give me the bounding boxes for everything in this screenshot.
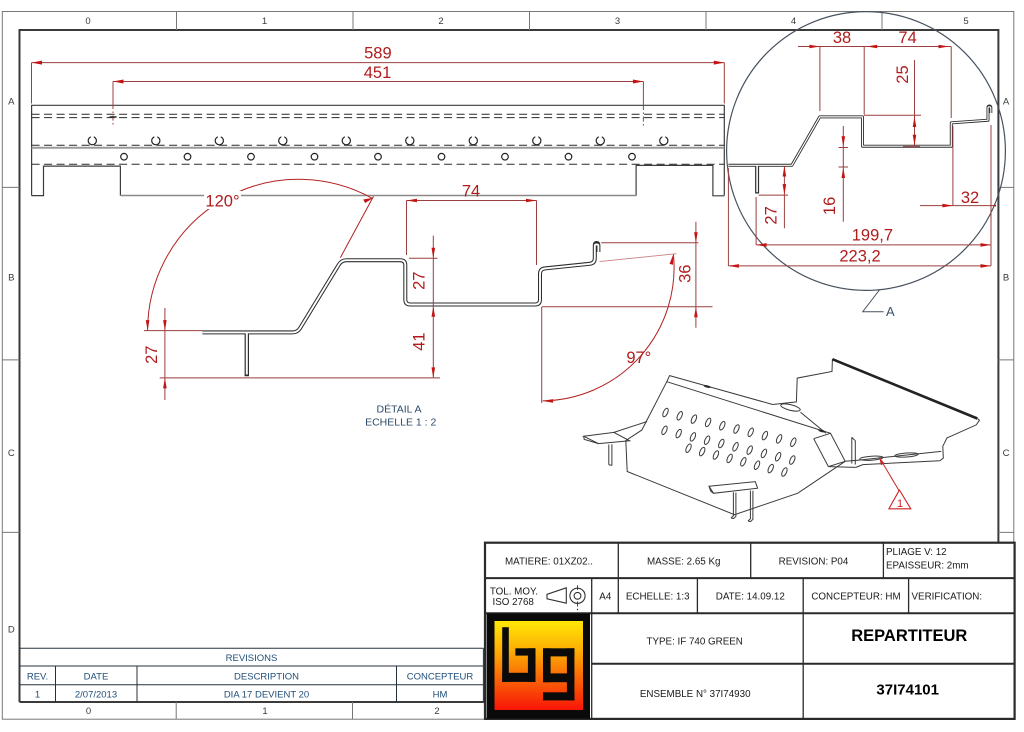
svg-text:VERIFICATION:: VERIFICATION: bbox=[912, 591, 983, 602]
svg-text:1: 1 bbox=[897, 498, 903, 510]
svg-text:27: 27 bbox=[411, 272, 429, 290]
svg-text:37I74101: 37I74101 bbox=[876, 681, 939, 698]
svg-text:C: C bbox=[8, 448, 15, 459]
svg-text:97°: 97° bbox=[626, 349, 651, 367]
svg-text:B: B bbox=[8, 273, 14, 284]
svg-text:DATE: DATE bbox=[84, 672, 109, 683]
svg-text:DATE: 14.09.12: DATE: 14.09.12 bbox=[716, 591, 785, 602]
svg-text:D: D bbox=[8, 625, 15, 636]
svg-text:PLIAGE V: 12: PLIAGE V: 12 bbox=[886, 547, 947, 558]
svg-text:TYPE: IF 740 GREEN: TYPE: IF 740 GREEN bbox=[647, 636, 743, 647]
svg-text:4: 4 bbox=[791, 16, 796, 27]
svg-text:2: 2 bbox=[438, 16, 443, 27]
svg-text:2/07/2013: 2/07/2013 bbox=[75, 690, 117, 701]
svg-text:16: 16 bbox=[821, 197, 839, 215]
svg-text:A4: A4 bbox=[599, 591, 612, 602]
svg-text:REPARTITEUR: REPARTITEUR bbox=[851, 627, 967, 645]
svg-text:3: 3 bbox=[615, 16, 620, 27]
svg-text:0: 0 bbox=[86, 706, 91, 717]
svg-text:DESCRIPTION: DESCRIPTION bbox=[234, 672, 299, 683]
svg-text:120°: 120° bbox=[205, 193, 239, 211]
svg-text:REV.: REV. bbox=[27, 672, 48, 683]
svg-text:REVISIONS: REVISIONS bbox=[226, 653, 278, 664]
svg-text:25: 25 bbox=[894, 65, 912, 83]
svg-text:ECHELLE 1 : 2: ECHELLE 1 : 2 bbox=[365, 417, 436, 429]
svg-text:41: 41 bbox=[411, 332, 429, 350]
svg-text:A: A bbox=[8, 97, 15, 108]
svg-text:27: 27 bbox=[762, 206, 780, 224]
svg-text:27: 27 bbox=[143, 346, 161, 364]
svg-text:DIA 17 DEVIENT 20: DIA 17 DEVIENT 20 bbox=[224, 690, 309, 701]
svg-text:DÉTAIL A: DÉTAIL A bbox=[377, 403, 422, 416]
svg-text:2: 2 bbox=[434, 706, 439, 717]
svg-text:74: 74 bbox=[898, 29, 916, 47]
svg-text:MASSE: 2.65 Kg: MASSE: 2.65 Kg bbox=[647, 556, 721, 567]
svg-text:36: 36 bbox=[677, 265, 695, 283]
svg-text:A: A bbox=[886, 304, 895, 319]
svg-text:C: C bbox=[1003, 448, 1010, 459]
svg-text:REVISION: P04: REVISION: P04 bbox=[779, 556, 849, 567]
svg-text:199,7: 199,7 bbox=[852, 227, 893, 245]
svg-text:1: 1 bbox=[262, 16, 267, 27]
svg-text:CONCEPTEUR: HM: CONCEPTEUR: HM bbox=[811, 591, 900, 602]
svg-text:38: 38 bbox=[833, 29, 851, 47]
svg-text:451: 451 bbox=[364, 64, 392, 82]
svg-text:1: 1 bbox=[262, 706, 267, 717]
svg-text:A: A bbox=[1003, 97, 1010, 108]
svg-text:0: 0 bbox=[85, 16, 90, 27]
svg-text:5: 5 bbox=[963, 16, 968, 27]
svg-text:ENSEMBLE N° 37I74930: ENSEMBLE N° 37I74930 bbox=[640, 689, 751, 700]
svg-text:CONCEPTEUR: CONCEPTEUR bbox=[407, 672, 474, 683]
svg-text:1: 1 bbox=[35, 690, 40, 701]
svg-text:223,2: 223,2 bbox=[839, 248, 880, 266]
svg-text:B: B bbox=[1003, 273, 1009, 284]
svg-text:TOL. MOY.: TOL. MOY. bbox=[490, 586, 538, 597]
svg-text:74: 74 bbox=[462, 183, 480, 201]
svg-text:EPAISSEUR: 2mm: EPAISSEUR: 2mm bbox=[886, 561, 969, 572]
svg-text:HM: HM bbox=[433, 690, 448, 701]
svg-text:ECHELLE: 1:3: ECHELLE: 1:3 bbox=[626, 591, 690, 602]
svg-text:32: 32 bbox=[961, 189, 979, 207]
svg-text:MATIERE: 01XZ02..: MATIERE: 01XZ02.. bbox=[505, 556, 593, 567]
svg-text:589: 589 bbox=[364, 45, 392, 63]
svg-text:ISO 2768: ISO 2768 bbox=[492, 597, 534, 608]
